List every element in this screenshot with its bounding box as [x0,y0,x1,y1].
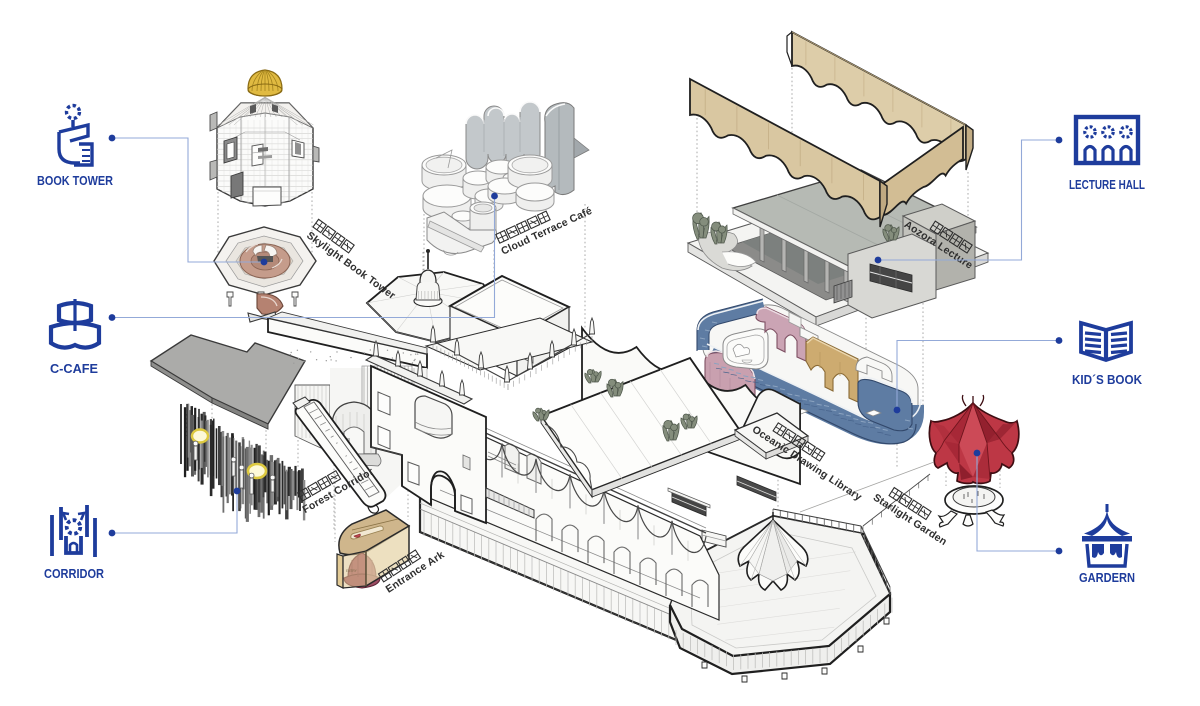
svg-text:LECTURE HALL: LECTURE HALL [1069,177,1145,192]
svg-text:CORRIDOR: CORRIDOR [44,566,105,581]
svg-text:KID´S BOOK: KID´S BOOK [1072,372,1143,387]
svg-text:GARDERN: GARDERN [1079,570,1135,585]
svg-text:ENTRY: ENTRY [346,569,358,573]
svg-text:BOOK TOWER: BOOK TOWER [37,173,114,188]
svg-text:C-CAFE: C-CAFE [50,361,98,376]
